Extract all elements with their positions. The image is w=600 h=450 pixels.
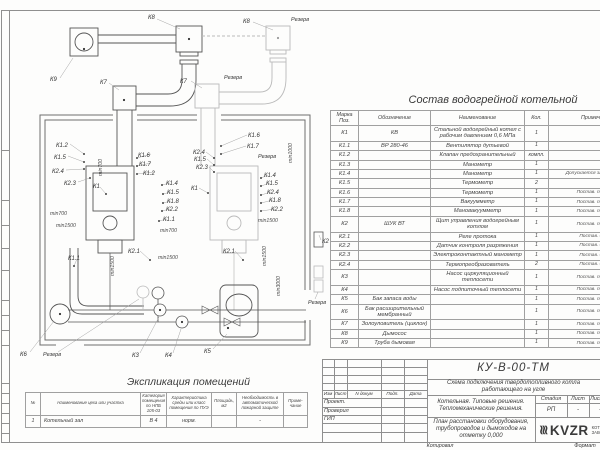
spec-row: К1.6 Термометр 1 Постав. по согла	[331, 188, 600, 197]
spec-cell-code	[359, 241, 431, 250]
spec-cell-qty: 1	[525, 241, 549, 250]
spec-cell-code	[359, 251, 431, 260]
spec-cell-name: Датчик контроля разряжения	[431, 241, 525, 250]
spec-cell-note	[549, 141, 600, 150]
room-table-title: Экспликация помещений	[70, 376, 307, 388]
tank-k5	[220, 285, 258, 337]
margin-cell-line	[1, 433, 9, 434]
spec-cell-note: Постав. по согла	[549, 320, 600, 329]
spec-cell-mark: К5	[331, 295, 359, 304]
spec-cell-note: Постав. по согла	[549, 285, 600, 294]
spec-cell-note: Постав. по согла	[549, 207, 600, 216]
spec-col-name: Наименование	[431, 111, 525, 126]
spec-cell-note: Постав. с ШУК	[549, 260, 600, 269]
reserve-flue-train	[195, 26, 290, 166]
spec-cell-mark: К6	[331, 304, 359, 320]
spec-cell-code	[359, 188, 431, 197]
plan-label: К1	[93, 184, 100, 190]
spec-cell-qty: 1	[525, 216, 549, 232]
spec-cell-mark: К9	[331, 339, 359, 348]
margin-cell-line	[1, 393, 9, 394]
spec-cell-code: Бак расширительный мембранный	[359, 304, 431, 320]
spec-cell-name: Электроконтактный манометр	[431, 251, 525, 260]
logo-caption-line2: ЗАВОД Р	[592, 430, 600, 435]
spec-cell-name: Термометр	[431, 179, 525, 188]
spec-cell-code: ВР 280-46	[359, 141, 431, 150]
spec-cell-name	[431, 320, 525, 329]
spec-cell-qty: 2	[525, 260, 549, 269]
spec-cell-note: Постав. по согла	[549, 329, 600, 338]
spec-row: К2.4 Термопреобразователь 2 Постав. с ШУ…	[331, 260, 600, 269]
frame-bottom-line	[1, 442, 600, 443]
plan-label: К2.3	[196, 165, 209, 171]
spec-row: К2.1 Реле протока 1 Постав. с ШУК	[331, 232, 600, 241]
spec-cell-mark: К1.4	[331, 169, 359, 178]
spec-row: К8 Дымосос 1 Постав. по согла	[331, 329, 600, 338]
tb-sheet-value: -	[567, 403, 589, 417]
tb-rev-header-podp: Подп.	[381, 390, 404, 398]
spec-cell-note: Постав. по согла	[549, 198, 600, 207]
spec-col-code: Обозначение	[359, 111, 431, 126]
room-col-note: Приме- чание	[284, 393, 308, 416]
margin-cell-line	[1, 270, 9, 271]
room-header-row: № Наименование цеха или участка Категори…	[26, 393, 308, 416]
format-label: Формат	[565, 443, 600, 450]
spec-cell-name	[431, 339, 525, 348]
plan-label: К1.6	[138, 153, 151, 159]
spec-cell-code: Труба дымовая	[359, 339, 431, 348]
tb-line	[322, 432, 427, 433]
spec-cell-qty: 1	[525, 251, 549, 260]
spec-cell-name	[431, 329, 525, 338]
spec-row: К9 Труба дымовая 1 Постав. по согла	[331, 339, 600, 348]
spec-cell-mark: К2	[331, 216, 359, 232]
spec-cell-qty: 1	[525, 329, 549, 338]
spec-row: К5 Бак запаса воды 1 Постав. по согла	[331, 295, 600, 304]
plan-label: К1.1	[163, 217, 175, 223]
dimension-label: min700	[50, 211, 67, 217]
spec-cell-qty: 1	[525, 304, 549, 320]
spec-row: К1 КВ Стальной водогрейный котел с рабоч…	[331, 126, 600, 142]
spec-cell-name: Манометр	[431, 160, 525, 169]
plan-label: К1	[191, 186, 198, 192]
plan-label: К6	[20, 352, 28, 358]
tb-doc-title: Схема подключения твердотопливного котла…	[429, 379, 598, 395]
spec-cell-mark: К3	[331, 270, 359, 286]
flue-gas-train	[98, 26, 202, 166]
spec-cell-note: Допускается зам. поз. К2.3	[549, 169, 600, 178]
spec-row: К1.5 Термометр 2	[331, 179, 600, 188]
dimension-label: min700	[160, 228, 177, 234]
spec-cell-note	[549, 160, 600, 169]
tb-line	[322, 367, 427, 368]
spec-cell-code	[359, 151, 431, 160]
logo-wave-icon: ≋	[535, 425, 551, 436]
spec-cell-code	[359, 207, 431, 216]
spec-cell-mark: К2.1	[331, 232, 359, 241]
spec-cell-name: Щит управления водогрейным котлом	[431, 216, 525, 232]
tb-stage-header: Стадия	[535, 395, 567, 403]
plan-label: К1.2	[143, 171, 156, 177]
plan-label: К8	[243, 19, 251, 25]
room-cell-area	[212, 415, 237, 427]
spec-cell-mark: К1.5	[331, 179, 359, 188]
spec-cell-code	[359, 270, 431, 286]
plan-label: К2	[322, 239, 330, 245]
copied-label: Копировал	[405, 443, 475, 450]
plan-label: К1.8	[167, 199, 180, 205]
plan-label: К1.1	[68, 256, 80, 262]
margin-cell-line	[1, 200, 9, 201]
spec-row: К2 ШУК ВТ Щит управления водогрейным кот…	[331, 216, 600, 232]
spec-cell-qty: 1	[525, 207, 549, 216]
spec-row: К1.1 ВР 280-46 Вентилятор дутьевой 1	[331, 141, 600, 150]
plan-label: К1.7	[247, 144, 260, 150]
spec-cell-qty: 1	[525, 285, 549, 294]
room-col-area: Площадь, м2	[212, 393, 237, 416]
room-col-num: №	[26, 393, 41, 416]
spec-cell-qty: 1	[525, 141, 549, 150]
spec-header-row: Марка Поз. Обозначение Наименование Кол.…	[331, 111, 600, 126]
spec-cell-mark: К4	[331, 285, 359, 294]
spec-cell-note: Постав. с ШУК	[549, 241, 600, 250]
tb-line	[381, 359, 382, 442]
margin-cell-line	[1, 150, 9, 151]
spec-cell-name: Вакуумметр	[431, 198, 525, 207]
plan-label: К2.4	[267, 190, 280, 196]
spec-cell-code	[359, 169, 431, 178]
spec-cell-note	[549, 126, 600, 142]
spec-col-qty: Кол.	[525, 111, 549, 126]
spec-cell-mark: К1.6	[331, 188, 359, 197]
plan-label: К1.2	[56, 143, 69, 149]
spec-cell-qty: 1	[525, 160, 549, 169]
room-col-fire: Необходимость в автоматической пожарной …	[237, 393, 284, 416]
margin-cell-line	[1, 423, 9, 424]
spec-cell-mark: К1.7	[331, 198, 359, 207]
spec-col-mark: Марка Поз.	[331, 111, 359, 126]
spec-cell-qty: 1	[525, 198, 549, 207]
plan-label: К2.1	[223, 249, 235, 255]
spec-row: К3 Насос циркуляционный теплосети 1 Пост…	[331, 270, 600, 286]
spec-row: К1.4 Манометр 1 Допускается зам. поз. К2…	[331, 169, 600, 178]
spec-cell-code: Дымосос	[359, 329, 431, 338]
room-table-section: Экспликация помещений № Наименование цех…	[25, 376, 307, 428]
tb-line	[322, 375, 427, 376]
tb-doc-number: КУ-В-00-ТМ	[427, 359, 600, 379]
spec-cell-mark: К1.2	[331, 151, 359, 160]
spec-row: К1.3 Манометр 1	[331, 160, 600, 169]
plan-label: К4	[165, 353, 173, 359]
spec-cell-note: Постав. по согла	[549, 295, 600, 304]
plan-label: Резерв	[308, 300, 326, 306]
room-col-cat: Категория помещения по НПБ 105-03	[141, 393, 167, 416]
kvzr-logo: ≋ KVZR КОТЕЛЬН ЗАВОД Р	[538, 420, 600, 440]
plan-label: К9	[50, 77, 58, 83]
dimension-label: min1500	[56, 223, 76, 229]
tb-stage-value: РП	[535, 403, 567, 417]
margin-cell-line	[1, 248, 9, 249]
spec-cell-name: Вентилятор дутьевой	[431, 141, 525, 150]
drawing-sheet: К9 К8 К7 К8 Резерв К7 Резерв К1.2 К1.5 К…	[0, 0, 600, 450]
plan-label: К2.4	[193, 150, 206, 156]
tb-sheet-title: План расстановки оборудования, трубопров…	[429, 417, 533, 442]
spec-cell-name: Термометр	[431, 188, 525, 197]
tb-sheets-value: -	[589, 403, 600, 417]
spec-cell-mark: К2.4	[331, 260, 359, 269]
spec-cell-mark: К8	[331, 329, 359, 338]
spec-cell-name: Манометр	[431, 169, 525, 178]
spec-row: К1.7 Вакуумметр 1 Постав. по согла	[331, 198, 600, 207]
spec-cell-note: Постав. с ШУК	[549, 232, 600, 241]
spec-cell-code	[359, 260, 431, 269]
plan-label: К7	[100, 80, 108, 86]
tb-role-project: Проект.	[324, 398, 379, 407]
spec-cell-note	[549, 179, 600, 188]
spec-cell-name: Термопреобразователь	[431, 260, 525, 269]
plan-label: К1.5	[167, 190, 180, 196]
spec-row: К4 Насос подпиточный теплосети 1 Постав.…	[331, 285, 600, 294]
spec-cell-code: Бак запаса воды	[359, 295, 431, 304]
spec-cell-code	[359, 232, 431, 241]
spec-row: К7 Золоуловитель (циклон) 1 Постав. по с…	[331, 320, 600, 329]
floor-plan: К9 К8 К7 К8 Резерв К7 Резерв К1.2 К1.5 К…	[10, 8, 340, 374]
margin-cell-line	[1, 345, 9, 346]
tb-rev-header-list: Лист	[334, 390, 347, 398]
plan-label: К2.3	[64, 181, 77, 187]
tb-sheet-header: Лист	[567, 395, 589, 403]
tb-rev-header-ndoc: N докум	[347, 390, 381, 398]
spec-cell-note: Постав. по согла	[549, 339, 600, 348]
spec-cell-name: Стальной водогрейный котел с рабочим дав…	[431, 126, 525, 142]
plan-label: К7	[180, 79, 188, 85]
plan-label: К1.5	[266, 181, 279, 187]
spec-table-title: Состав водогрейной котельной	[330, 94, 600, 106]
margin-cell-line	[1, 300, 9, 301]
spec-table: Марка Поз. Обозначение Наименование Кол.…	[330, 110, 600, 348]
spec-cell-mark: К1.3	[331, 160, 359, 169]
spec-cell-mark: К2.3	[331, 251, 359, 260]
frame-edge-line	[1, 10, 2, 443]
spec-row: К1.8 Мановакуумметр 1 Постав. по согла	[331, 207, 600, 216]
spec-row: К2.3 Электроконтактный манометр 1 Постав…	[331, 251, 600, 260]
spec-cell-note	[549, 151, 600, 160]
tb-rev-header-data: Дата	[404, 390, 427, 398]
logo-caption: КОТЕЛЬН ЗАВОД Р	[592, 425, 600, 436]
room-row: 1 Котельный зал В 4 норм. -	[26, 415, 308, 427]
spec-table-section: Состав водогрейной котельной Марка Поз. …	[330, 94, 600, 348]
spec-cell-note: Постав. по согла	[549, 304, 600, 320]
spec-cell-note: Постав. по согла	[549, 270, 600, 286]
spec-cell-qty: компл.	[525, 151, 549, 160]
spec-cell-qty: 1	[525, 295, 549, 304]
margin-cell-line	[1, 383, 9, 384]
spec-row: К2.2 Датчик контроля разряжения 1 Постав…	[331, 241, 600, 250]
tb-role-checked: Проверил	[324, 407, 379, 415]
dimension-label: min700	[98, 159, 104, 176]
tb-role-gip: ГИП	[324, 415, 379, 423]
plan-labels: К9 К8 К7 К8 Резерв К7 Резерв К1.2 К1.5 К…	[20, 15, 330, 359]
room-cell-num: 1	[26, 415, 41, 427]
room-cell-fire: -	[237, 415, 284, 427]
spec-cell-mark: К7	[331, 320, 359, 329]
plan-label: К2.1	[128, 249, 140, 255]
spec-cell-name: Реле протока	[431, 232, 525, 241]
spec-cell-note: Постав. по согла	[549, 188, 600, 197]
room-table: № Наименование цеха или участка Категори…	[25, 392, 308, 428]
dimension-label: min1500	[258, 218, 278, 224]
chimney-k9	[70, 28, 98, 56]
margin-cell-line	[1, 330, 9, 331]
spec-cell-qty: 1	[525, 232, 549, 241]
room-cell-name: Котельный зал	[41, 415, 141, 427]
wall-openings	[56, 113, 312, 347]
margin-cell-line	[1, 315, 9, 316]
plan-label: К1.7	[139, 162, 152, 168]
tb-rev-header-izm: Изм	[322, 390, 334, 398]
plan-label: К1.6	[248, 133, 261, 139]
spec-cell-note: Постав. по согла	[549, 216, 600, 232]
spec-cell-qty: 1	[525, 126, 549, 142]
spec-cell-code: Золоуловитель (циклон)	[359, 320, 431, 329]
tb-line	[322, 423, 427, 424]
spec-cell-code: ШУК ВТ	[359, 216, 431, 232]
dimension-label: min3000	[276, 276, 282, 296]
spec-cell-name	[431, 304, 525, 320]
spec-cell-name: Клапан предохранительный	[431, 151, 525, 160]
spec-cell-mark: К1.1	[331, 141, 359, 150]
spec-cell-mark: К1.8	[331, 207, 359, 216]
spec-cell-mark: К1	[331, 126, 359, 142]
plan-label: К3	[132, 353, 140, 359]
margin-cell-line	[1, 413, 9, 414]
plan-label: К2.4	[52, 169, 65, 175]
margin-cell-line	[1, 403, 9, 404]
spec-cell-qty: 1	[525, 339, 549, 348]
spec-cell-name: Насос циркуляционный теплосети	[431, 270, 525, 286]
plan-label: Резерв	[291, 17, 309, 23]
dimension-label: min1500	[262, 246, 268, 266]
room-col-env: Характеристика среды или класс помещения…	[167, 393, 212, 416]
spec-cell-code	[359, 285, 431, 294]
plan-label: К1.5	[54, 155, 67, 161]
air-duct	[70, 248, 144, 314]
plan-label: К5	[204, 349, 212, 355]
spec-cell-note: Постав. с ШУК	[549, 251, 600, 260]
room-cell-env: норм.	[167, 415, 212, 427]
dimension-label: min1000	[288, 143, 294, 163]
spec-cell-qty: 1	[525, 188, 549, 197]
plan-label: Резерв	[43, 352, 61, 358]
room-cell-cat: В 4	[141, 415, 167, 427]
spec-cell-code	[359, 179, 431, 188]
dimension-label: min1500	[110, 256, 116, 276]
plan-label: К2.2	[271, 207, 284, 213]
plan-label: К1.8	[269, 198, 282, 204]
room-cell-note	[284, 415, 308, 427]
margin-cell-line	[1, 225, 9, 226]
tb-line	[322, 383, 427, 384]
plan-label: К1.5	[194, 157, 207, 163]
plan-label: К2.2	[166, 207, 179, 213]
plan-label: К8	[148, 15, 156, 21]
tb-sheets-header: Листов	[589, 395, 600, 403]
spec-col-note: Примечание	[549, 111, 600, 126]
spec-cell-qty: 1	[525, 320, 549, 329]
plan-label: Резерв	[258, 154, 276, 160]
spec-cell-name	[431, 295, 525, 304]
tank-k6	[50, 304, 70, 324]
tb-project-name: Котельная. Типовые решения. Тепломеханич…	[429, 395, 533, 417]
spec-cell-name: Насос подпиточный теплосети	[431, 285, 525, 294]
spec-row: К6 Бак расширительный мембранный 1 Поста…	[331, 304, 600, 320]
spec-row: К1.2 Клапан предохранительный компл.	[331, 151, 600, 160]
spec-cell-code	[359, 160, 431, 169]
spec-cell-code: КВ	[359, 126, 431, 142]
spec-cell-qty: 1	[525, 169, 549, 178]
logo-text: KVZR	[550, 423, 589, 438]
dimension-label: min1500	[158, 255, 178, 261]
spec-cell-qty: 1	[525, 270, 549, 286]
spec-cell-mark: К2.2	[331, 241, 359, 250]
plan-label: К1.4	[166, 181, 179, 187]
spec-cell-code	[359, 198, 431, 207]
boiler-reserve	[210, 166, 258, 310]
tb-line	[322, 359, 323, 442]
spec-cell-qty: 2	[525, 179, 549, 188]
spec-cell-name: Мановакуумметр	[431, 207, 525, 216]
plan-label: Резерв	[224, 75, 242, 81]
tb-line	[404, 359, 405, 442]
room-col-name: Наименование цеха или участка	[41, 393, 141, 416]
plan-label: К1.4	[264, 173, 277, 179]
